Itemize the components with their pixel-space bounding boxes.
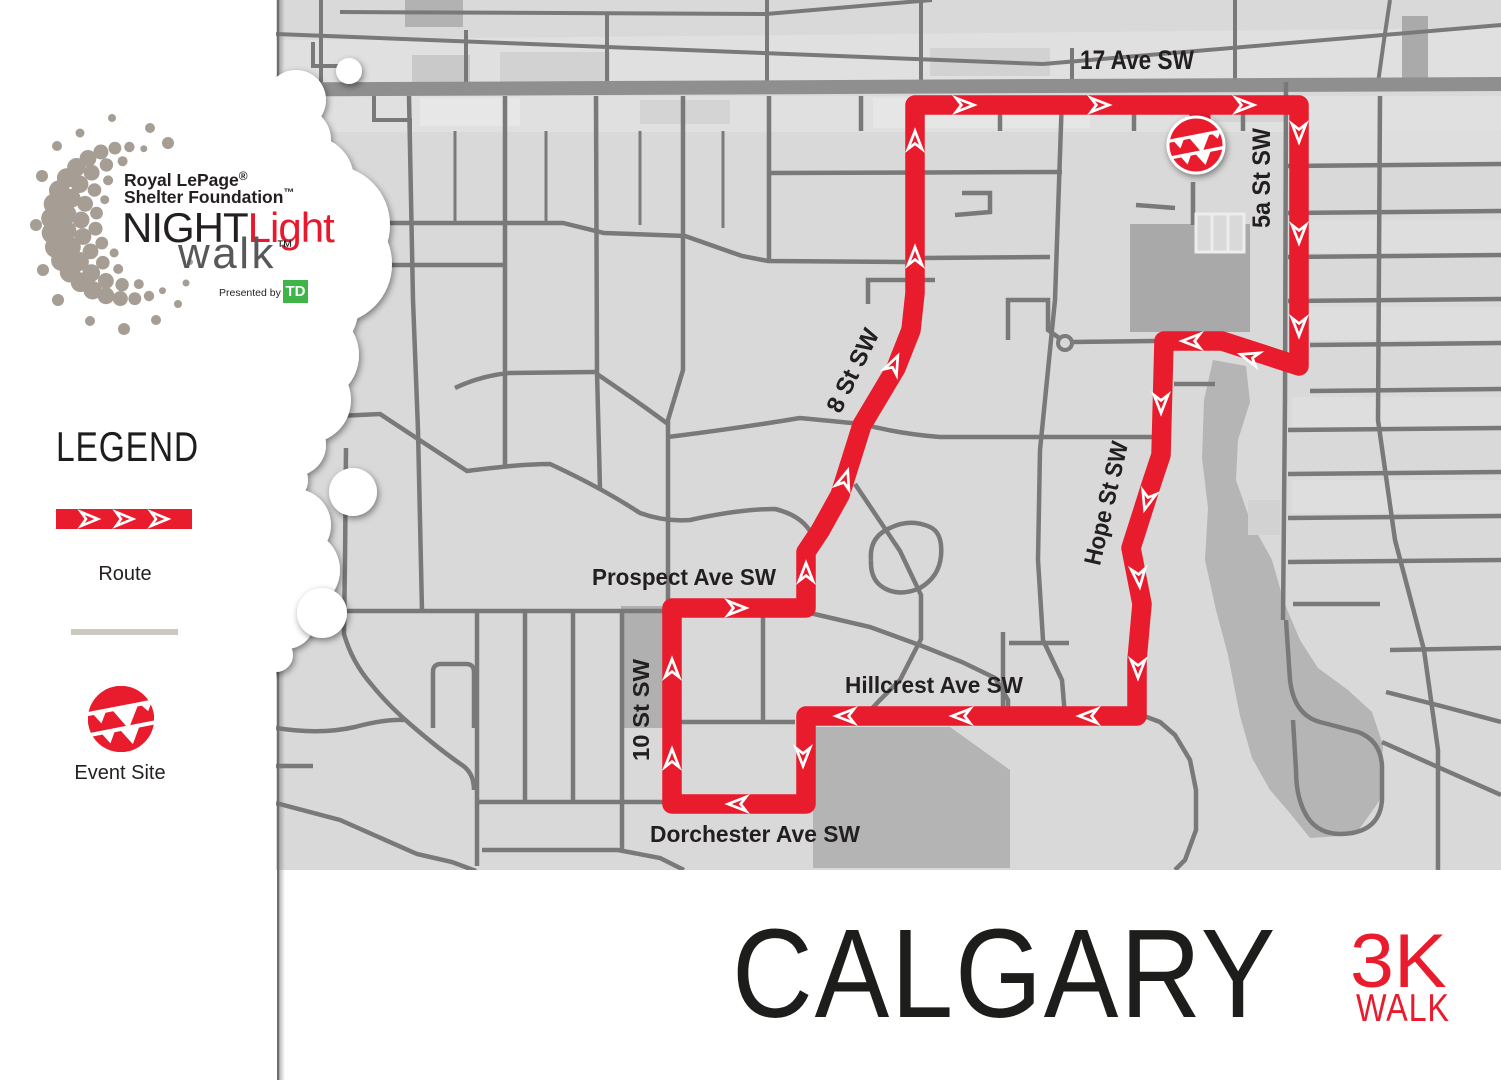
svg-text:Prospect Ave SW: Prospect Ave SW [592, 564, 776, 590]
svg-text:Hillcrest Ave SW: Hillcrest Ave SW [845, 672, 1023, 698]
svg-text:5a St SW: 5a St SW [1248, 128, 1276, 228]
svg-text:17 Ave SW: 17 Ave SW [1080, 45, 1194, 75]
svg-text:Dorchester Ave SW: Dorchester Ave SW [650, 821, 861, 847]
svg-text:10 St SW: 10 St SW [628, 659, 654, 761]
